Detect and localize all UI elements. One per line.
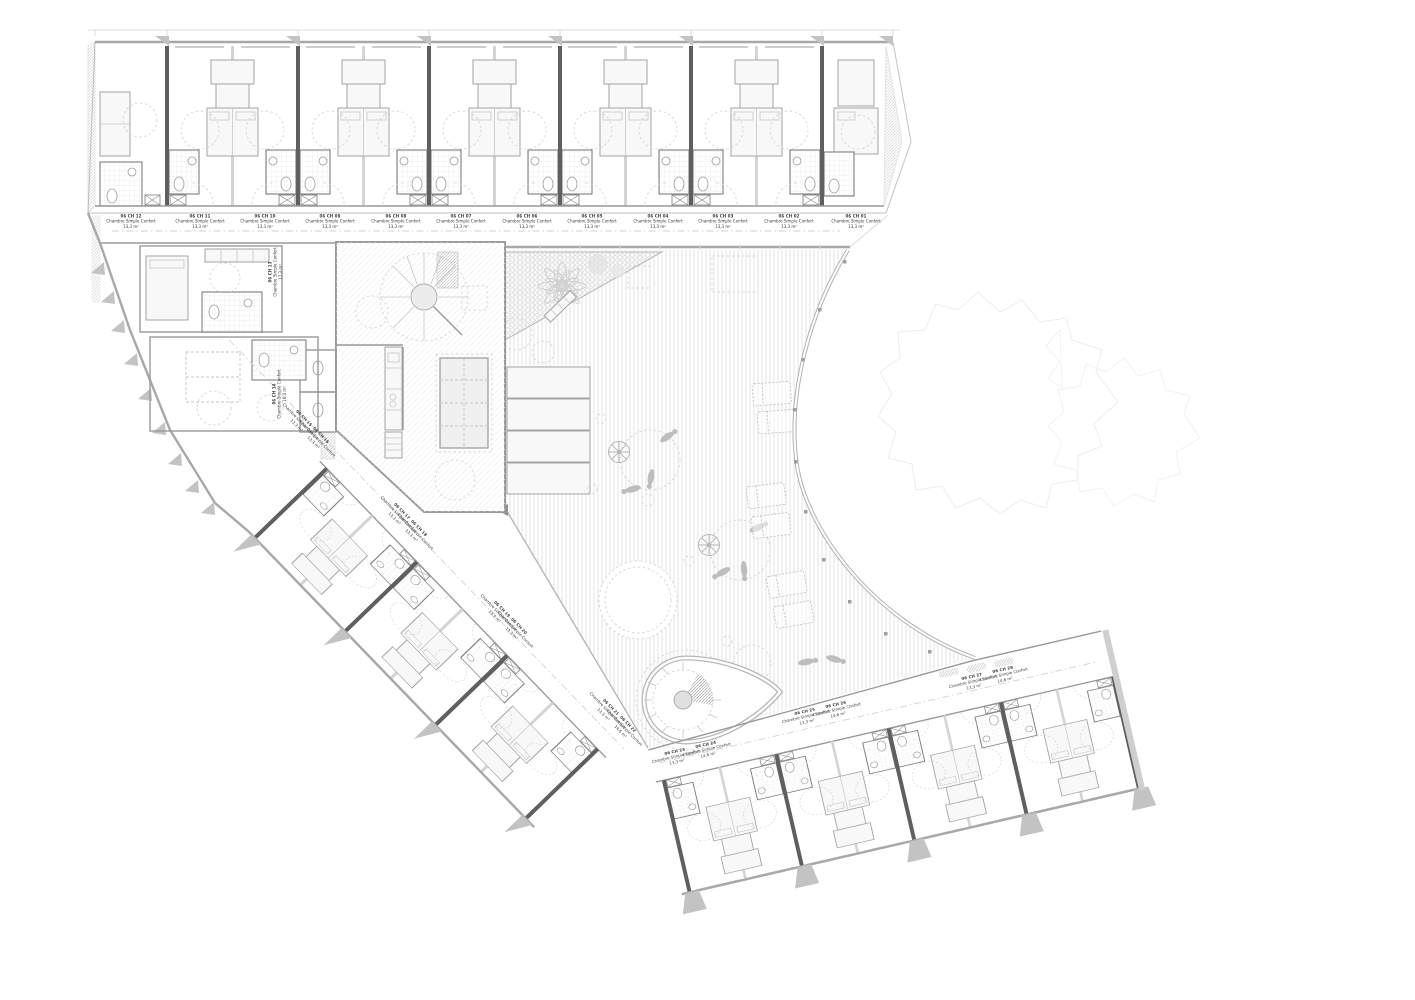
room-label: 06 CH 03Chambre Simple Confort13,3 m² xyxy=(698,214,747,230)
common-block xyxy=(300,242,505,512)
kitchen-counter xyxy=(385,347,402,430)
room-label: 06 CH 02Chambre Simple Confort13,3 m² xyxy=(764,214,813,230)
round-feature xyxy=(599,561,677,639)
room-13-interior xyxy=(146,249,269,332)
room-label: 06 CH 05Chambre Simple Confort13,3 m² xyxy=(567,214,616,230)
room-label: 06 CH 06Chambre Simple Confort13,3 m² xyxy=(502,214,551,230)
room-label: 06 CH 08Chambre Simple Confort13,3 m² xyxy=(371,214,420,230)
room-label: 06 CH 10Chambre Simple Confort13,3 m² xyxy=(240,214,289,230)
room-label: 06 CH 09Chambre Simple Confort13,3 m² xyxy=(305,214,354,230)
communal-table xyxy=(436,354,492,452)
room-label: 06 CH 12Chambre Simple Confort13,3 m² xyxy=(106,214,155,230)
tree-canopy xyxy=(878,292,1200,514)
terrace-panels xyxy=(507,367,590,494)
room-label: 06 CH 01Chambre Simple Confort13,3 m² xyxy=(831,214,880,230)
floor-plan-canvas xyxy=(0,0,1415,1000)
room-label: 06 CH 04Chambre Simple Confort13,3 m² xyxy=(633,214,682,230)
room-label: 06 CH 07Chambre Simple Confort13,3 m² xyxy=(436,214,485,230)
floor-plan: 06 CH 12Chambre Simple Confort13,3 m² 06… xyxy=(0,0,1415,1000)
steps xyxy=(385,432,402,458)
room-label: 06 CH 13Chambre Simple Confort17,3 m² xyxy=(268,247,284,296)
room-label: 06 CH 11Chambre Simple Confort13,3 m² xyxy=(175,214,224,230)
